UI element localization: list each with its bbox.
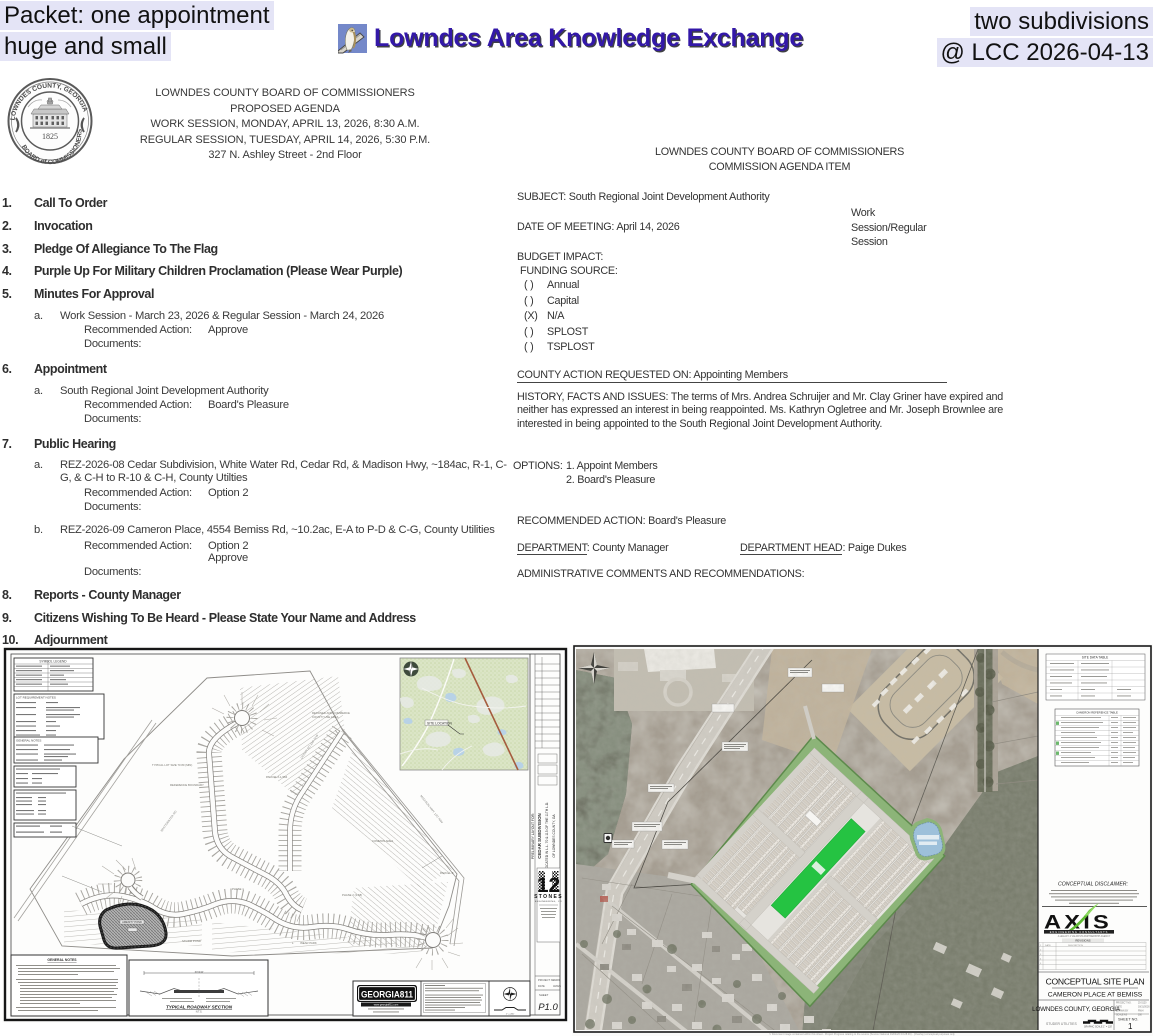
svg-text:60' R/W: 60' R/W (195, 971, 204, 974)
svg-text:GEORGIA811: GEORGIA811 (361, 990, 413, 1000)
svg-text:SITE DATA TABLE: SITE DATA TABLE (1082, 656, 1109, 660)
svg-text:25-5120: 25-5120 (1138, 1003, 1147, 1005)
svg-text:PRELIMINARY LAYOUT FOR:: PRELIMINARY LAYOUT FOR: (531, 813, 535, 859)
svg-text:DATE: DATE (1045, 944, 1051, 947)
svg-text:CEDAR SUBDIVISION: CEDAR SUBDIVISION (537, 813, 542, 858)
svg-text:CAMERON PLACE AT BEMISS: CAMERON PLACE AT BEMISS (1048, 991, 1143, 998)
svg-text:OF LOWNDES COUNTY, GA: OF LOWNDES COUNTY, GA (552, 814, 556, 858)
svg-text:PARCEL A 1-584: PARCEL A 1-584 (266, 775, 288, 779)
svg-text:21009: 21009 (553, 978, 561, 982)
svg-text:SITE LOCATION: SITE LOCATION (427, 721, 452, 725)
svg-text:PROJECT NO.: PROJECT NO. (1116, 1003, 1132, 1005)
svg-text:SHEET: SHEET (539, 993, 549, 997)
svg-text:PARCEL B: PARCEL B (440, 871, 454, 875)
svg-text:AMENITY POND: AMENITY POND (122, 920, 142, 924)
svg-text:03/31/2026: 03/31/2026 (1138, 1007, 1150, 1009)
svg-text:CONCEPTUAL SITE PLAN: CONCEPTUAL SITE PLAN (1046, 977, 1145, 987)
svg-text:SYMBOL LEGEND: SYMBOL LEGEND (39, 660, 67, 664)
svg-text:PHASE 2 (1-58): PHASE 2 (1-58) (342, 893, 362, 897)
svg-text:REVISIONS: REVISIONS (1075, 939, 1090, 943)
svg-text:COMMON AREA: COMMON AREA (372, 839, 393, 843)
svg-text:DATE: DATE (1116, 1006, 1122, 1009)
svg-text:© Document image contained wit: © Document image contained within this s… (769, 1032, 955, 1036)
svg-text:1" = 200': 1" = 200' (506, 1014, 515, 1016)
svg-text:DRAWN BY: DRAWN BY (1116, 1010, 1129, 1013)
svg-text:CAMERON REFERENCE TABLE: CAMERON REFERENCE TABLE (1076, 711, 1118, 715)
svg-text:TYPICAL LOT SIZE 70 80 (MIN): TYPICAL LOT SIZE 70 80 (MIN) (152, 763, 192, 767)
svg-text:GENERAL NOTES: GENERAL NOTES (16, 739, 41, 743)
svg-text:RWH: RWH (1138, 1011, 1144, 1013)
svg-text:DATE: DATE (538, 984, 545, 988)
svg-text:TYPICAL ROADWAY SECTION: TYPICAL ROADWAY SECTION (166, 1005, 233, 1010)
svg-text:GENERAL NOTES: GENERAL NOTES (47, 958, 77, 962)
svg-text:STONES: STONES (534, 894, 563, 900)
svg-text:P1.0: P1.0 (538, 1002, 558, 1013)
svg-text:LOCATED IN L.L. 70 & 115 OF TH: LOCATED IN L.L. 70 & 115 OF THE 11TH L.D… (545, 802, 549, 871)
svg-text:PHASE 1: PHASE 1 (232, 887, 244, 891)
svg-text:REFERENCE BOUNDARY: REFERENCE BOUNDARY (170, 783, 204, 787)
svg-text:1: 1 (1128, 1022, 1133, 1031)
svg-text:STORM POND: STORM POND (182, 939, 201, 943)
svg-text:ENGINEERING CONSULTANTS: ENGINEERING CONSULTANTS (1050, 930, 1109, 934)
svg-text:N.T.S.: N.T.S. (196, 1011, 203, 1014)
svg-text:A LEGACY 4 VALDOSTA PARTNERSHI: A LEGACY 4 VALDOSTA PARTNERSHIP AGENCY (1058, 935, 1111, 938)
svg-text:ENGINEERING, CO: ENGINEERING, CO (535, 901, 562, 903)
svg-text:SHEET NO.: SHEET NO. (1118, 1018, 1138, 1022)
svg-text:DESCRIPTION: DESCRIPTION (1068, 945, 1083, 947)
svg-text:GRAPHIC SCALE 1" = 120': GRAPHIC SCALE 1" = 120' (1084, 1025, 1113, 1028)
svg-text:COUNTY USE AREA: COUNTY USE AREA (312, 715, 339, 719)
svg-text:CONCEPTUAL DISCLAIMER:: CONCEPTUAL DISCLAIMER: (1058, 882, 1129, 888)
svg-text:LOT REQUIREMENT NOTES: LOT REQUIREMENT NOTES (16, 696, 56, 700)
svg-text:STUDER UTILITIES: STUDER UTILITIES (1046, 1022, 1077, 1026)
svg-text:LOWNDES COUNTY, GEORGIA: LOWNDES COUNTY, GEORGIA (1032, 1006, 1121, 1013)
svg-text:3/2026: 3/2026 (553, 984, 561, 988)
svg-text:www.georgia811.com: www.georgia811.com (374, 1003, 399, 1007)
